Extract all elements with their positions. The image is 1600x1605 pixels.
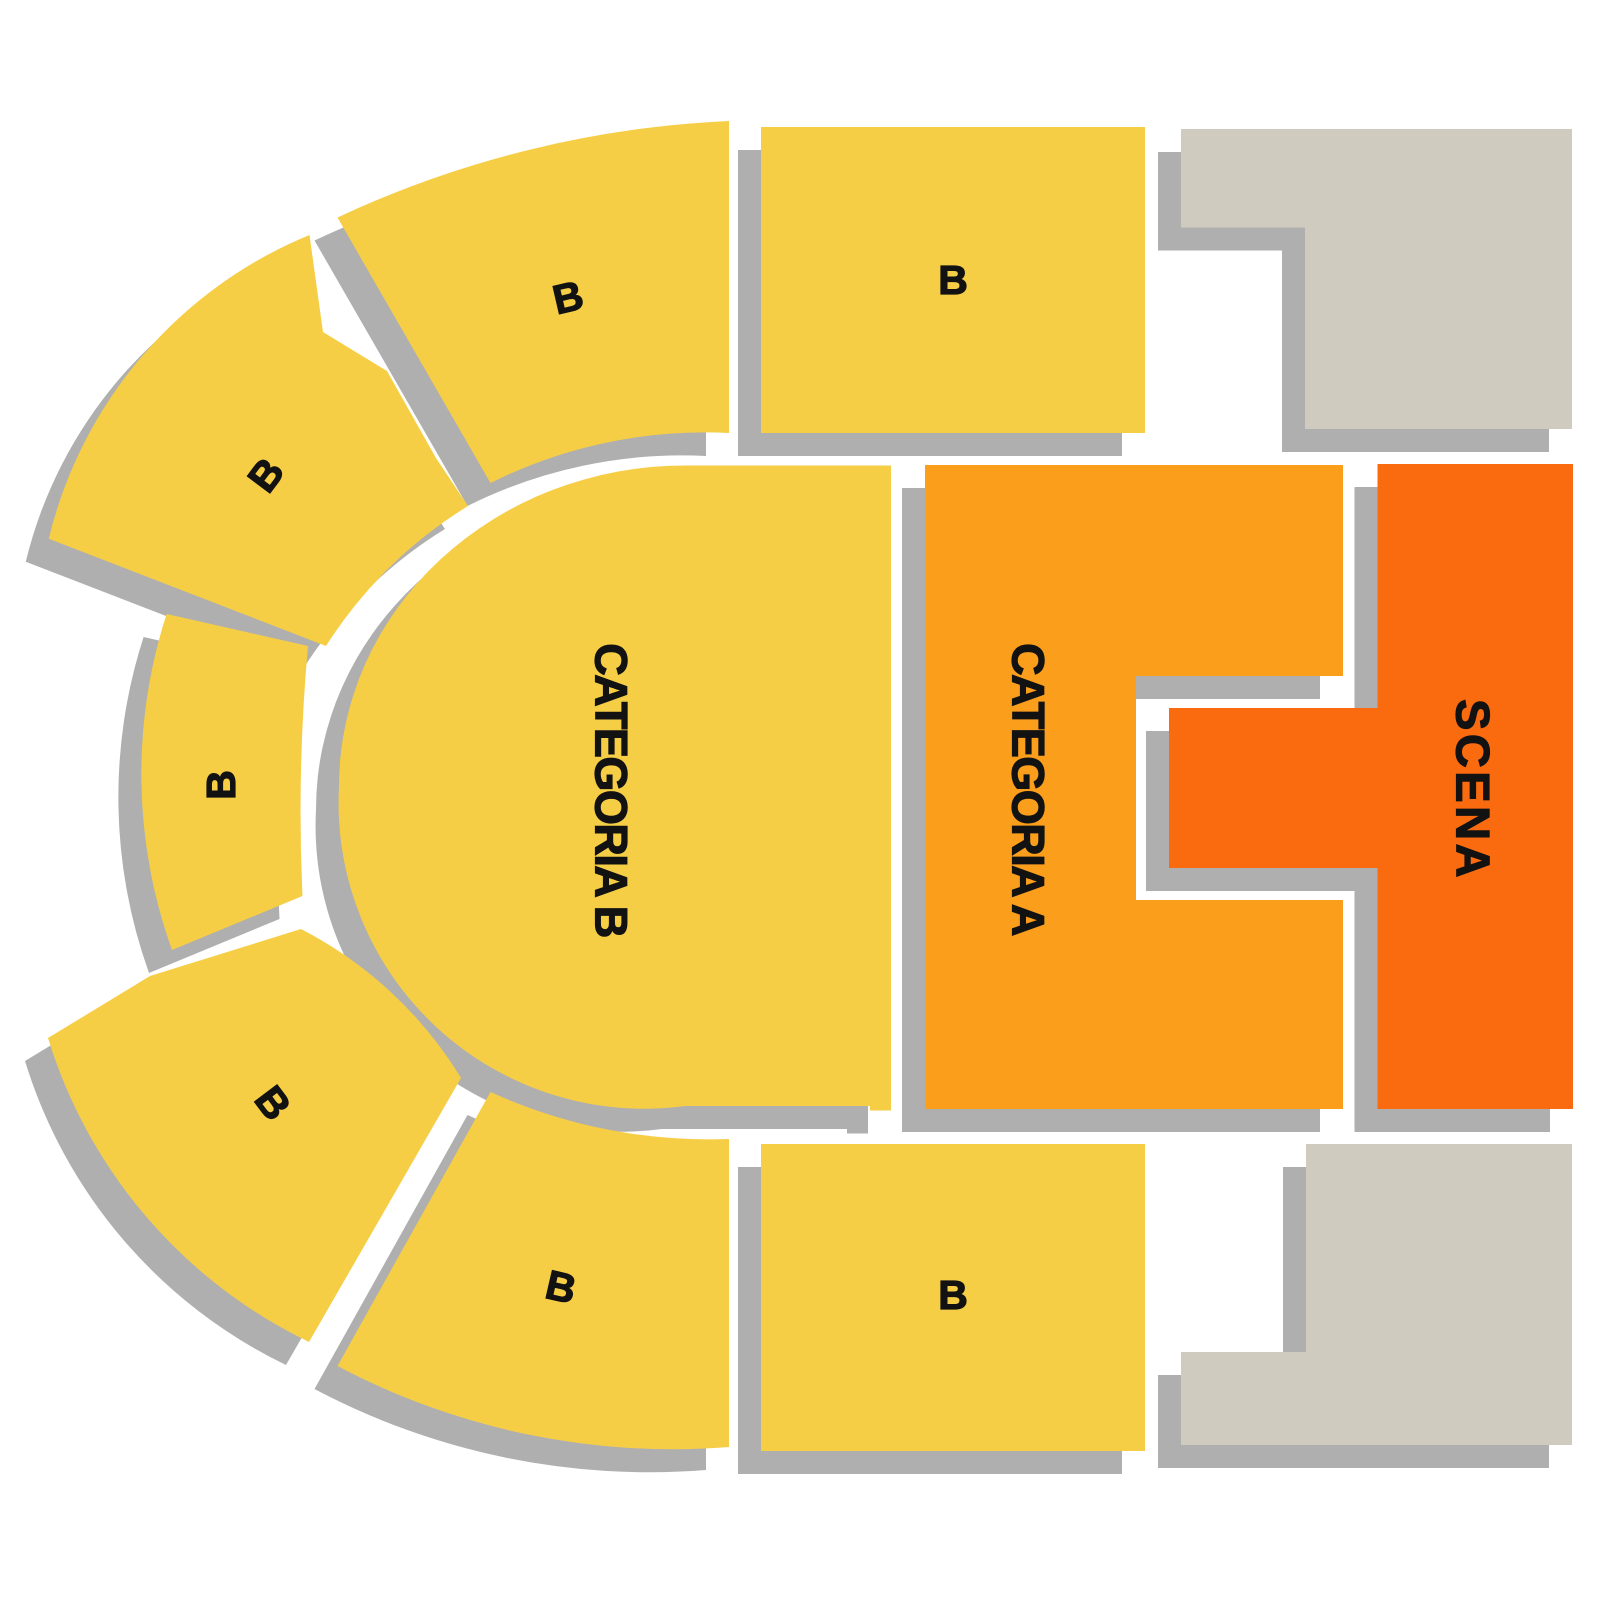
svg-text:B: B xyxy=(938,257,968,303)
svg-text:CATEGORIA A: CATEGORIA A xyxy=(1003,643,1054,936)
svg-text:B: B xyxy=(198,770,244,800)
svg-text:SCENA: SCENA xyxy=(1447,699,1500,881)
svg-text:B: B xyxy=(938,1272,968,1318)
svg-text:CATEGORIA B: CATEGORIA B xyxy=(586,643,637,937)
